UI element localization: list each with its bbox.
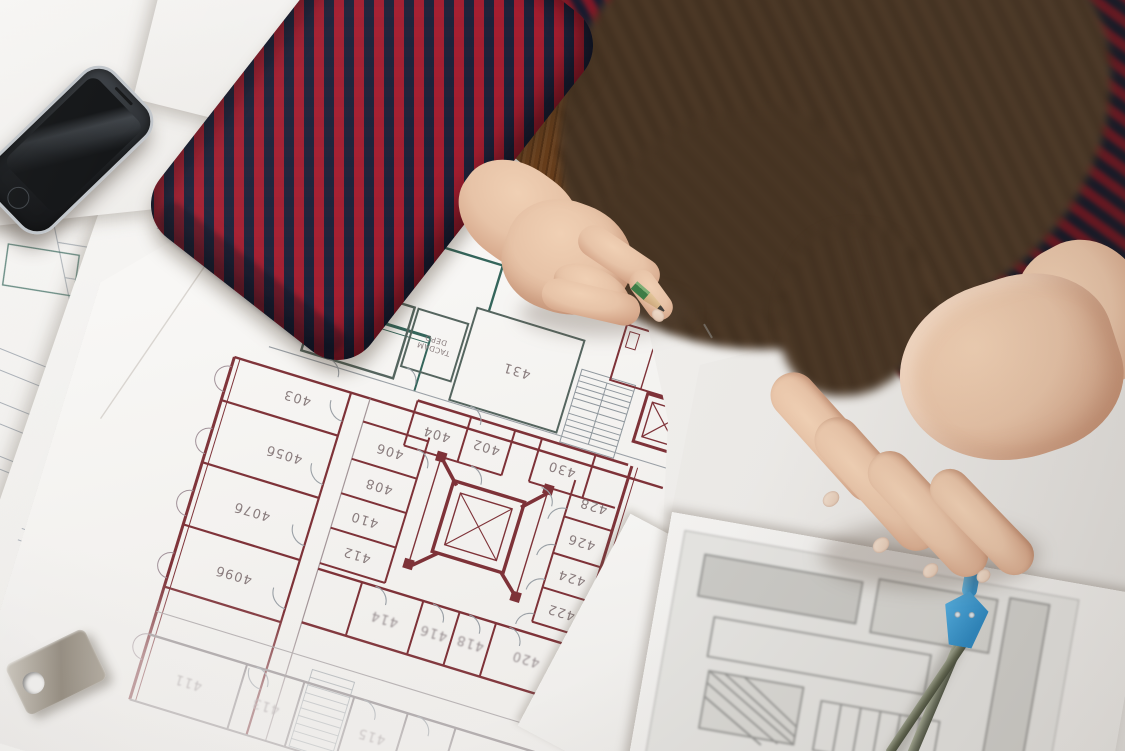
fingernail: [820, 488, 843, 510]
fingernail: [870, 534, 893, 556]
fingernail: [920, 560, 941, 581]
photo-architect-desk-scene: 401 403 405б 407б 409б 411 413 415 431 4…: [0, 0, 1125, 751]
right-hand: [455, 150, 745, 380]
left-hand: [770, 240, 1125, 620]
metal-tag-hole: [19, 668, 48, 697]
